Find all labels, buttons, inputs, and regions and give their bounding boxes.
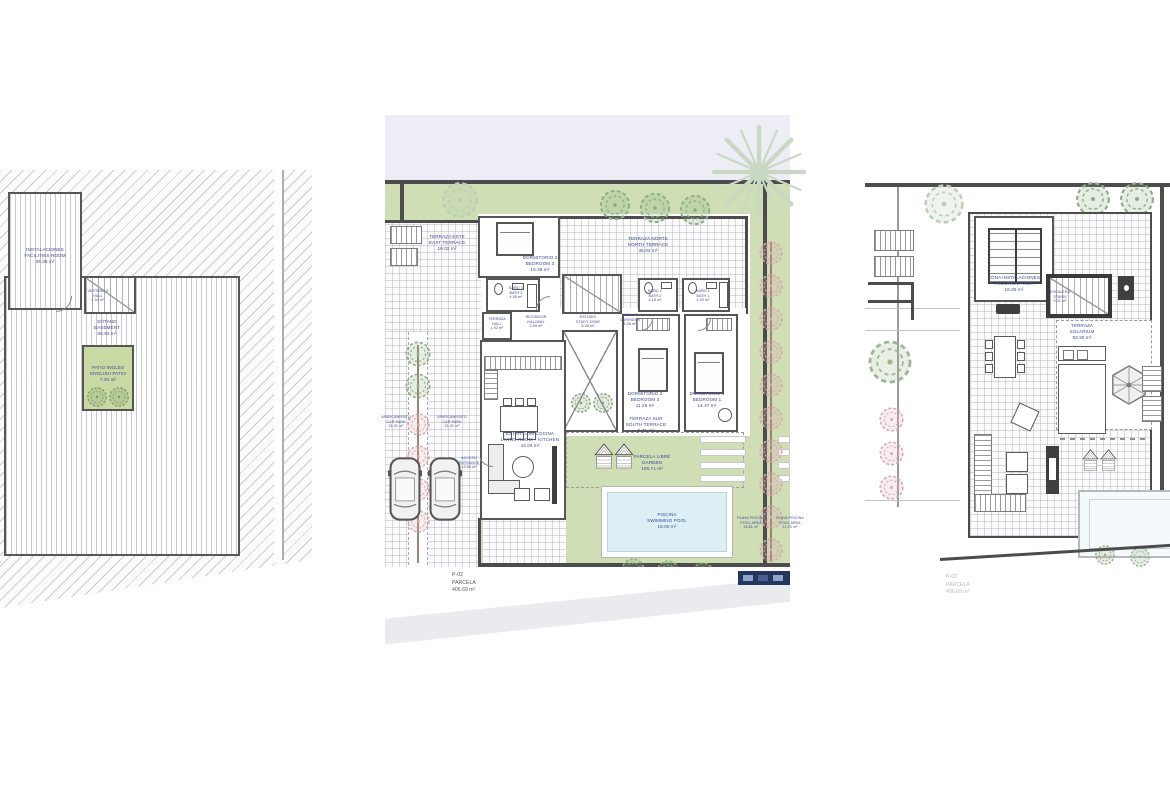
chair [503, 398, 512, 406]
tree-icon [404, 372, 432, 400]
room-label-pool-area-1: PLAYA PISCINAPOOL AREA15.61 m² [737, 516, 765, 530]
tree-icon [638, 191, 672, 225]
scale-bar-segment [743, 575, 753, 581]
parcel-gap [274, 170, 282, 562]
shower [527, 284, 537, 308]
toilet [494, 283, 503, 295]
pink-tree-icon [758, 471, 784, 497]
skylight [1058, 364, 1106, 434]
room-label-bath2: BAÑO 2BATH 24.18 m² [648, 289, 662, 303]
room-label-pool: PISCINASWIMMING POOL18.00 m² [647, 512, 687, 530]
roof-dining-table [994, 336, 1016, 378]
sink [706, 282, 717, 289]
basement-room [4, 276, 240, 556]
bed [638, 348, 668, 392]
wall-segment [911, 282, 914, 320]
kitchen-module [1063, 350, 1074, 360]
room-label-hall: VESTÍBULO HALL 1.94 m² [87, 289, 108, 303]
room-label-bedroom3: DORMITORIO 3BEDROOM 315.38 m² [523, 255, 558, 273]
bed [694, 352, 724, 394]
room-label-pool-area-2: PLAYA PISCINAPOOL AREA11.23 m² [776, 516, 804, 530]
parcela-label-partial: PARCELA [0, 558, 2, 567]
inner-patio [562, 330, 618, 432]
deck-plank [700, 449, 746, 456]
chimney-flue [1124, 285, 1129, 291]
pink-tree-icon [878, 440, 905, 467]
room-label-stairs: ESCALERASTAIRS9.31 m² [1050, 290, 1070, 304]
room-label-east-terrace: TERRAZA ESTEEAST TERRACE18.02 m² [429, 234, 465, 252]
wall-segment [868, 300, 914, 303]
lounge-chair [534, 488, 550, 501]
room-label-patio: PATIO INGLÉS ENGLISH PATIO 7.20 m² [90, 365, 126, 383]
sun-lounger [1142, 366, 1162, 392]
pink-tree-icon [758, 240, 784, 266]
room-label-carpark-1: APARCAMIENTOCAR PARK21.21 m² [381, 415, 411, 429]
pergola-icon [614, 434, 634, 478]
pink-tree-icon [878, 474, 905, 501]
deck-plank [700, 436, 746, 443]
main-stairs [562, 274, 622, 314]
chair [1017, 340, 1025, 349]
coffee-table [1006, 474, 1028, 494]
room-label-bedroom2: DORMITORIO 2BEDROOM 211.25 m² [628, 391, 663, 409]
south-terrace [482, 520, 566, 564]
room-label-solarium: TERRAZASOLARIUM93.90 m² [1070, 323, 1095, 341]
coffee-table [1006, 452, 1028, 472]
terrace-side-wall [478, 518, 481, 567]
fence-post-west [400, 182, 404, 224]
car-icon [388, 452, 422, 526]
room-label-corridor: PASILLOCORRIDOR5.06 m² [620, 313, 640, 327]
carport-storage [874, 230, 914, 251]
pink-tree-icon [758, 273, 784, 299]
kitchen-counter-side [484, 370, 498, 400]
outdoor-kitchen [1058, 346, 1106, 361]
room-label-entrance: ACCESOENTRANCE14.56 m² [459, 456, 480, 470]
kitchen-counter [484, 356, 562, 370]
lounge-chair [514, 488, 530, 501]
bed [496, 222, 534, 256]
pink-tree-icon [758, 372, 784, 398]
room-label-carpark-2: APARCAMIENTOCAR PARK21.21 m² [437, 415, 467, 429]
room-label-basement: SÓTANO BASEMENT 89.93 m² [94, 319, 120, 337]
wall-segment [868, 282, 914, 285]
room-label-terrace-hall: TERRAZAHALL1.92 m² [488, 317, 505, 331]
patio-tree-icon [570, 392, 592, 414]
patio-tree-icon [86, 386, 108, 408]
chair [1017, 352, 1025, 361]
fireplace-slot [1049, 458, 1056, 480]
tree-icon [598, 188, 632, 222]
corner-sofa [974, 494, 1026, 512]
sun-lounger [1142, 396, 1162, 422]
deck-plank [700, 462, 746, 469]
guide-line [865, 330, 960, 331]
floor-plans-canvas: INSTALACIONES FACILITIES ROOM 35.39 m² V… [0, 0, 1170, 785]
scale-bar-segment [758, 575, 768, 581]
chair [1017, 364, 1025, 373]
coffee-table [512, 456, 534, 478]
tree-light-icon [922, 182, 966, 226]
pink-tree-icon [758, 306, 784, 332]
parcela-label: P-02 PARCELA 406.69 m² [946, 574, 970, 597]
chair [985, 364, 993, 373]
room-label-north-terrace: TERRAZA NORTENORTH TERRACE35.02 m² [628, 236, 669, 254]
dining-table [500, 406, 538, 432]
pink-tree-icon [758, 537, 784, 563]
chair [527, 398, 536, 406]
pink-tree-icon [878, 406, 905, 433]
palm-tree-icon [705, 118, 813, 226]
car-icon [428, 452, 462, 526]
room-label-facilities: INSTALACIONES FACILITIES ROOM 35.39 m² [24, 247, 65, 265]
room-label-living-kitchen: ESTAR-COM-COCINALIVING ROOM + KITCHEN43.… [501, 431, 559, 449]
room-label-facilities-area: ZONA INSTALACIONESFACILITIES AREA16.05 m… [988, 275, 1040, 293]
room-label-study: ESTUDIOSTUDY ZONE6.35 m² [576, 315, 600, 329]
parcel-boundary-line [282, 170, 284, 560]
chimney-unit [1118, 276, 1134, 300]
carport-storage [874, 256, 914, 277]
chair [985, 340, 993, 349]
east-boundary-wall [1160, 187, 1164, 492]
room-label-hallway: RECIBIDORHALLWAY3.59 m² [526, 315, 547, 329]
east-terrace-wall [385, 220, 481, 223]
tv-unit [552, 446, 557, 504]
north-terrace-wall-right [745, 216, 748, 314]
pink-tree-icon [758, 339, 784, 365]
patio-tree-icon [592, 392, 614, 414]
kitchen-module [1077, 350, 1088, 360]
scale-bar [738, 571, 790, 585]
room-label-bedroom1: DORMITORIO 1BEDROOM 114.47 m² [690, 391, 725, 409]
pool-inner-line [1089, 499, 1170, 549]
pink-tree-icon [758, 438, 784, 464]
armchair [718, 408, 732, 422]
room-label-garden: PARCELA LIBREGARDEN106.71 m² [634, 454, 671, 472]
sink [661, 282, 672, 289]
bathtub [719, 282, 728, 308]
carport-area [385, 330, 480, 570]
scale-bar-segment [773, 575, 783, 581]
chair [985, 352, 993, 361]
pergola-icon [1082, 440, 1099, 480]
pink-tree-icon [758, 405, 784, 431]
parcela-label: P-02 PARCELA 406.69 m² [452, 572, 476, 595]
room-label-south-terrace: TERRAZA SURSOUTH TERRACE9.71 m² [626, 416, 667, 434]
tree-icon [1129, 546, 1151, 568]
chair [515, 398, 524, 406]
tree-icon [866, 338, 914, 386]
terrace-storage [390, 226, 422, 244]
room-label-bath1: BAÑO 1BATH 14.09 m² [696, 289, 710, 303]
room-label-bath3: BAÑO 3BATH 34.05 m² [509, 286, 523, 300]
terrace-storage [390, 248, 418, 266]
bbq-unit [996, 304, 1020, 314]
tree-light-icon [440, 180, 480, 220]
deck-plank [700, 475, 746, 482]
pergola-icon [1100, 440, 1117, 480]
tree-icon [404, 340, 432, 368]
fireplace [1046, 446, 1059, 494]
patio-tree-icon [108, 386, 130, 408]
pergola-icon [594, 434, 614, 478]
